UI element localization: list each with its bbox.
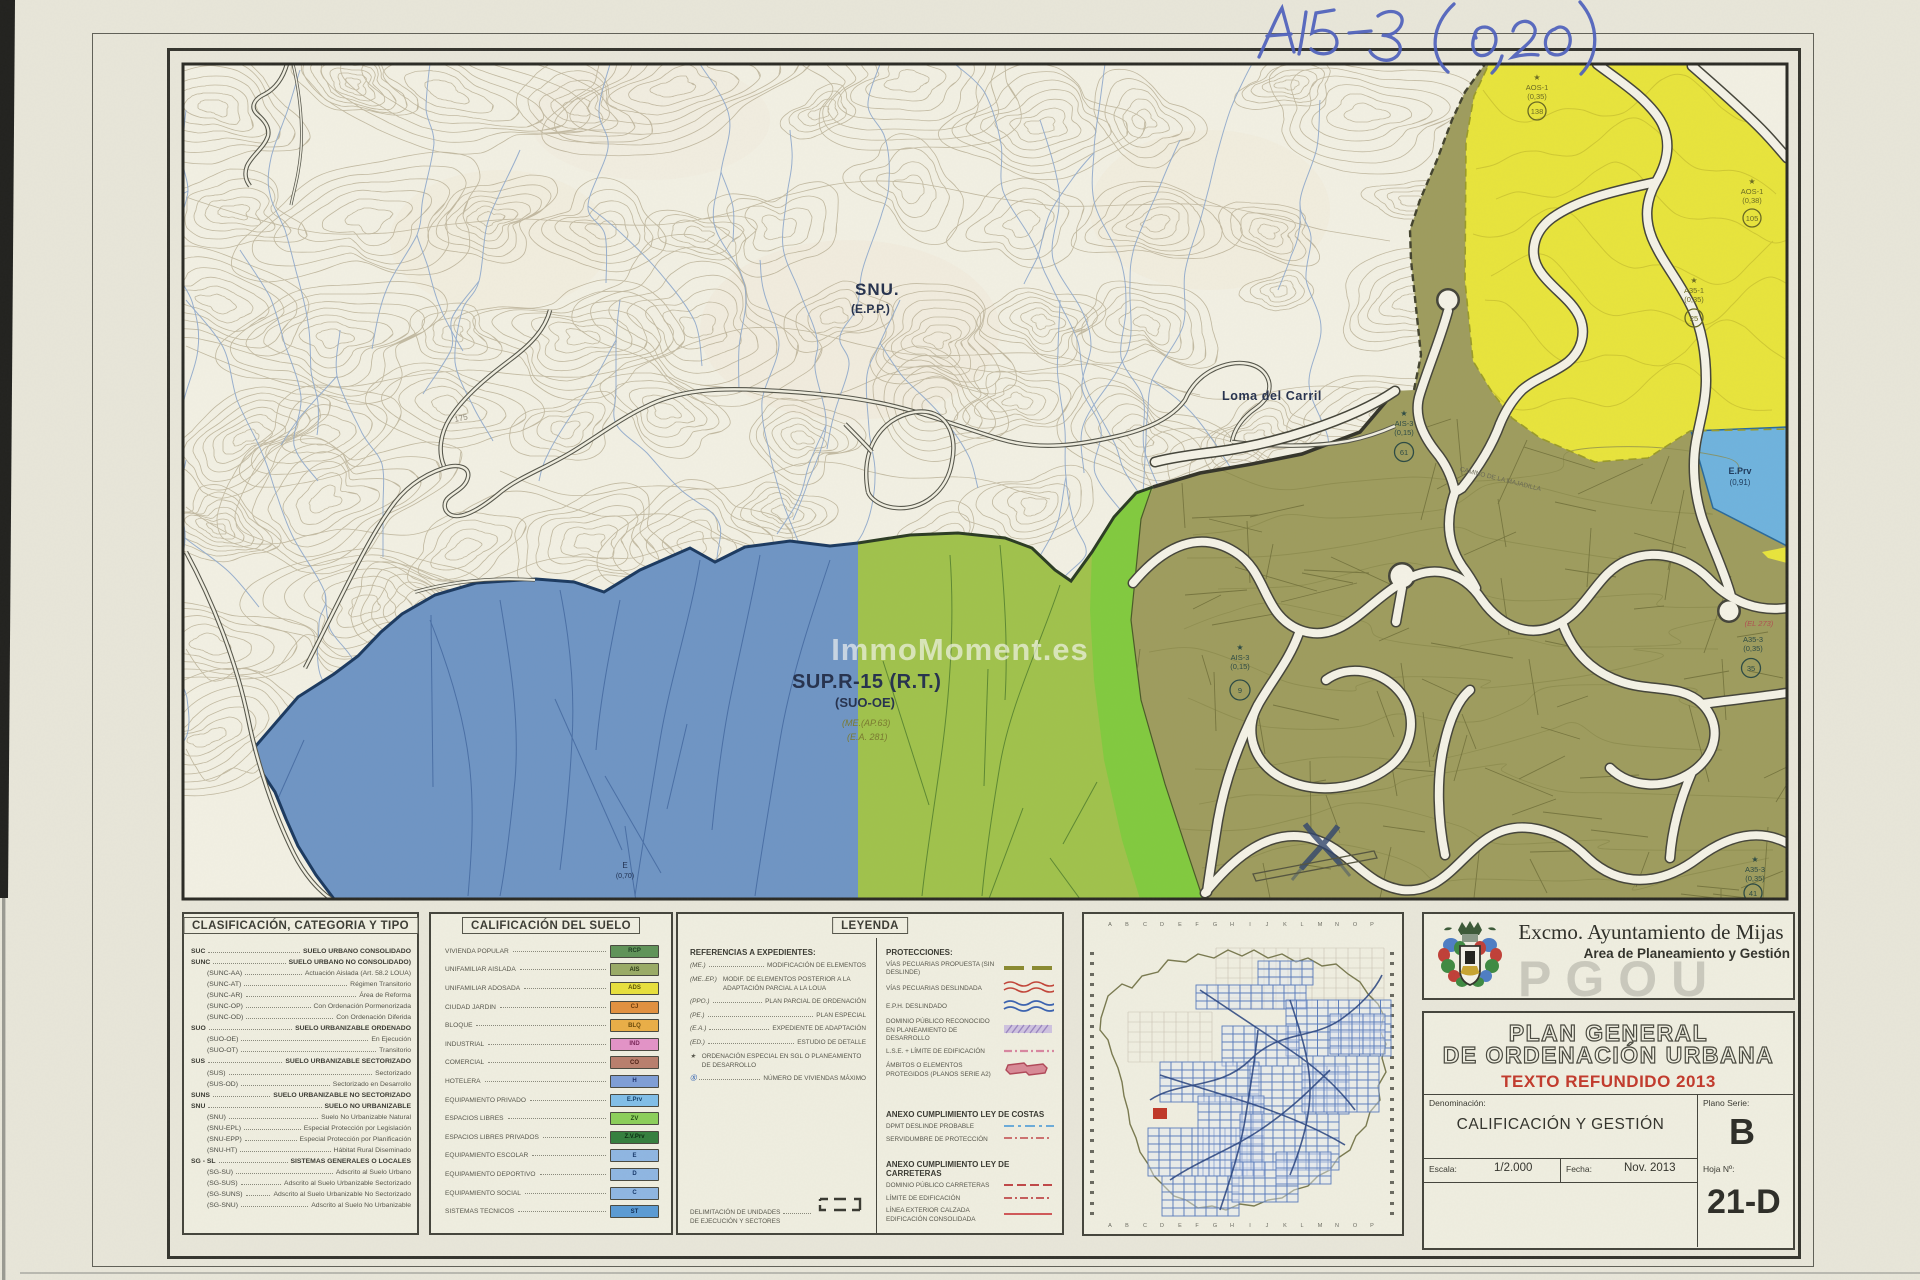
svg-text:I: I [1249, 922, 1251, 928]
svg-text:G: G [1213, 922, 1217, 928]
svg-text:M: M [1318, 922, 1323, 928]
svg-text:D: D [1160, 922, 1164, 928]
svg-text:A: A [1108, 1223, 1112, 1229]
svg-text:A: A [1108, 922, 1112, 928]
svg-text:J: J [1266, 922, 1269, 928]
svg-text:O: O [1353, 1223, 1358, 1229]
svg-text:H: H [1230, 922, 1234, 928]
svg-text:L: L [1300, 922, 1303, 928]
svg-text:F: F [1195, 1223, 1199, 1229]
svg-text:E: E [1178, 922, 1182, 928]
svg-text:C: C [1143, 922, 1147, 928]
svg-text:P: P [1370, 1223, 1374, 1229]
svg-text:C: C [1143, 1223, 1147, 1229]
svg-text:D: D [1160, 1223, 1164, 1229]
svg-text:H: H [1230, 1223, 1234, 1229]
svg-text:J: J [1266, 1223, 1269, 1229]
svg-text:M: M [1318, 1223, 1323, 1229]
svg-text:K: K [1283, 922, 1287, 928]
svg-text:P: P [1370, 922, 1374, 928]
svg-text:N: N [1335, 922, 1339, 928]
svg-text:K: K [1283, 1223, 1287, 1229]
svg-text:G: G [1213, 1223, 1217, 1229]
svg-text:F: F [1195, 922, 1199, 928]
svg-text:I: I [1249, 1223, 1251, 1229]
svg-text:E: E [1178, 1223, 1182, 1229]
svg-text:O: O [1353, 922, 1358, 928]
svg-text:L: L [1300, 1223, 1303, 1229]
svg-text:B: B [1125, 922, 1129, 928]
svg-text:N: N [1335, 1223, 1339, 1229]
svg-text:B: B [1125, 1223, 1129, 1229]
